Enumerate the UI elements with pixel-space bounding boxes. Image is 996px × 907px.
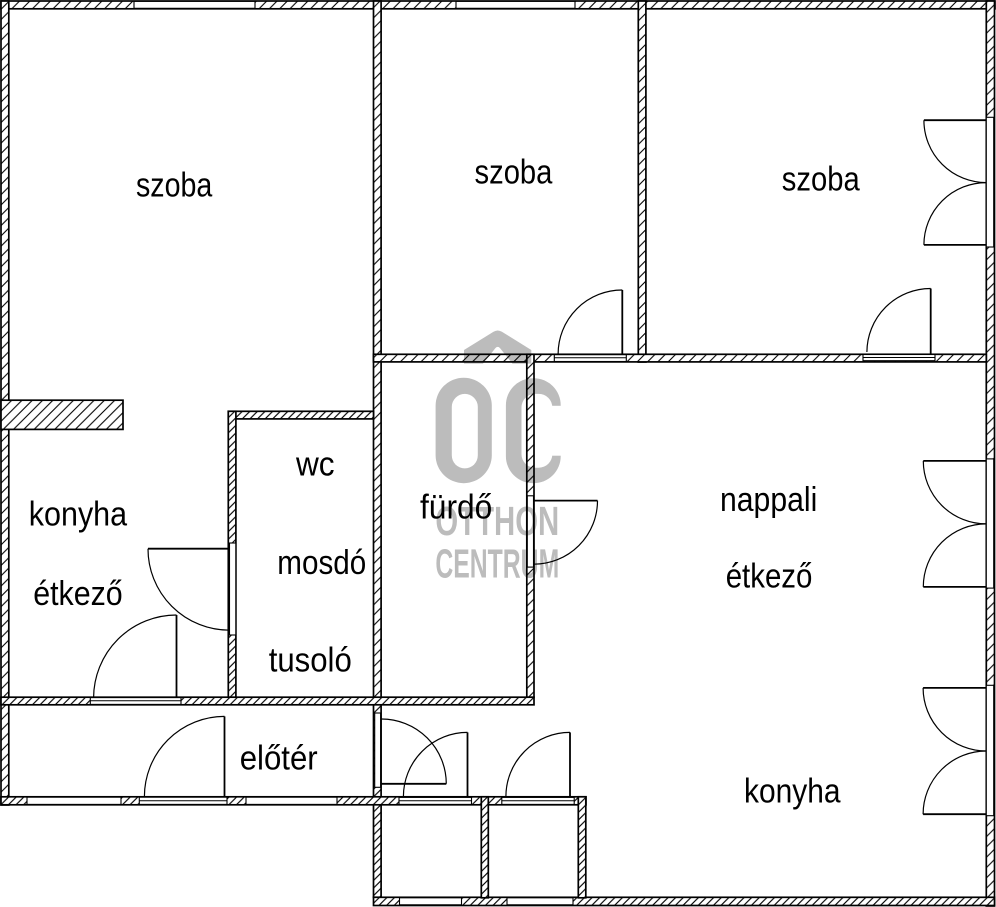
svg-text:étkező: étkező: [33, 575, 123, 613]
svg-text:szoba: szoba: [782, 160, 860, 198]
svg-text:konyha: konyha: [744, 773, 841, 811]
svg-text:szoba: szoba: [475, 154, 553, 192]
svg-text:mosdó: mosdó: [277, 544, 366, 582]
svg-text:nappali: nappali: [720, 481, 817, 519]
svg-text:tusoló: tusoló: [269, 642, 352, 680]
svg-text:wc: wc: [295, 445, 335, 483]
svg-text:étkező: étkező: [726, 557, 813, 595]
svg-text:szoba: szoba: [136, 167, 212, 205]
svg-text:CENTRUM: CENTRUM: [435, 541, 559, 587]
svg-text:előtér: előtér: [240, 740, 318, 778]
svg-text:OTTHON: OTTHON: [435, 498, 559, 544]
svg-text:konyha: konyha: [29, 495, 127, 533]
